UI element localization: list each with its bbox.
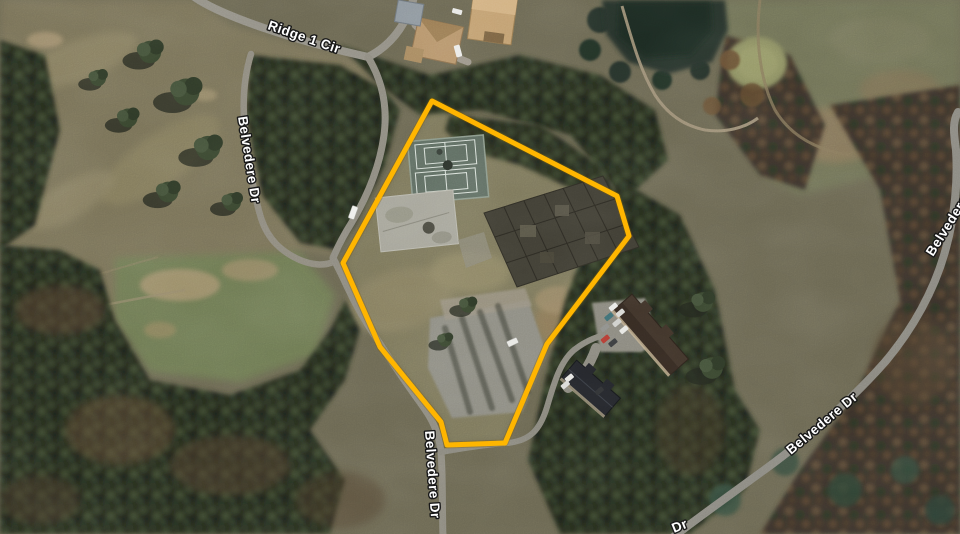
satellite-map-canvas[interactable]: Ridge 1 Cir Belvedere Dr Belvedere Dr Be…: [0, 0, 960, 534]
fine-photo-grain: [0, 0, 960, 534]
map-viewport: Ridge 1 Cir Belvedere Dr Belvedere Dr Be…: [0, 0, 960, 534]
